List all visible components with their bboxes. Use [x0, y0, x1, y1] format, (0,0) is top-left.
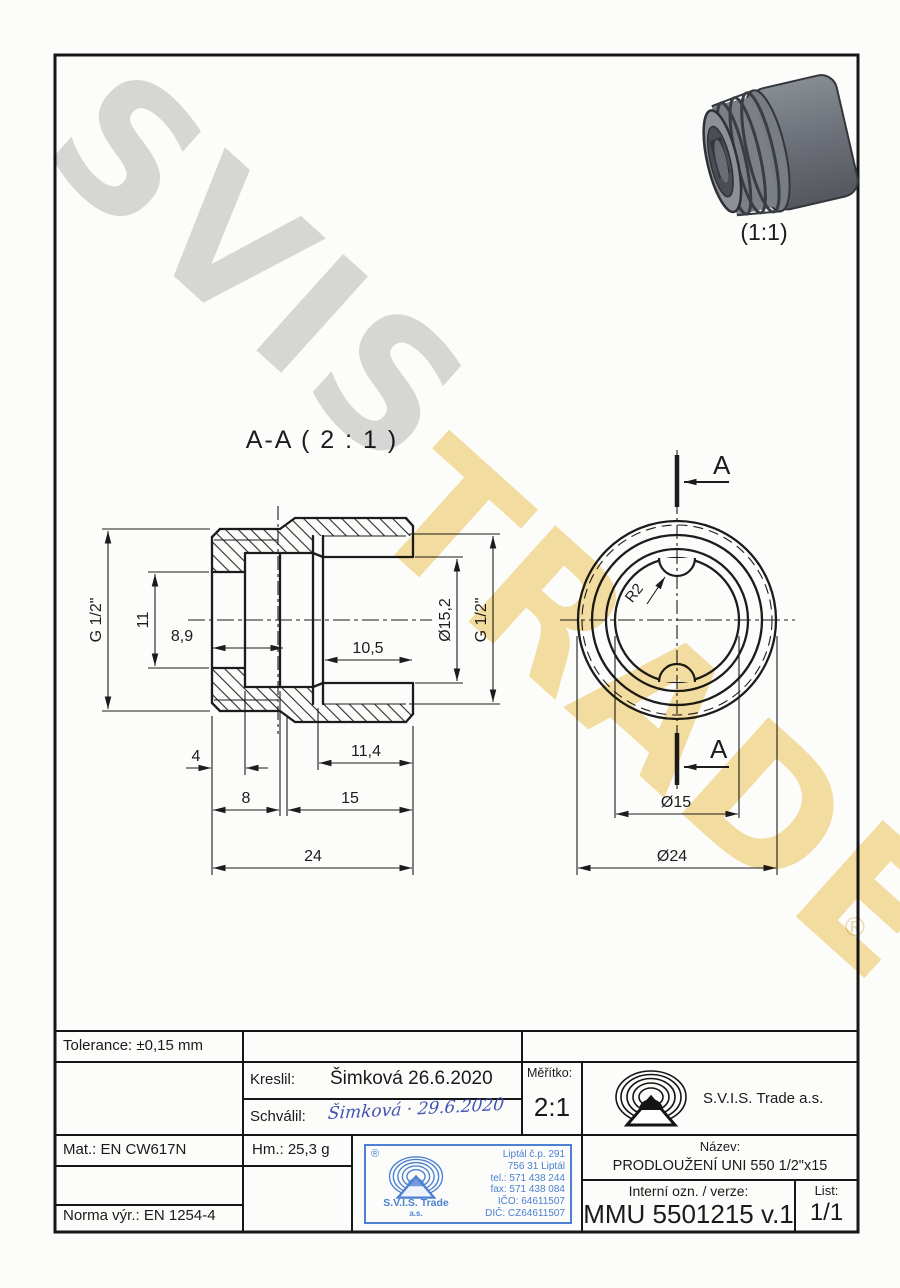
material-note: Mat.: EN CW617N	[63, 1141, 186, 1158]
dim-11: 11	[135, 612, 152, 629]
company-stamp: ® S.V.I.S. Trade a.s. Liptál č.p. 291 75…	[364, 1144, 572, 1224]
stamp-address-line: Liptál č.p. 291	[485, 1149, 565, 1161]
stamp-ico-line: IČO: 64611507	[485, 1196, 565, 1208]
schvalil-label: Schválil:	[250, 1108, 306, 1125]
stamp-address-line: 756 31 Liptál	[485, 1161, 565, 1173]
stamp-logo	[382, 1156, 450, 1200]
kreslil-value: Šimková 26.6.2020	[330, 1068, 493, 1090]
dim-4: 4	[192, 748, 201, 765]
front-view: A A R2 Ø15 Ø24	[560, 450, 795, 875]
stamp-company: S.V.I.S. Trade	[368, 1197, 464, 1209]
meritko-label: Měřítko:	[527, 1066, 572, 1080]
list-value: 1/1	[795, 1199, 858, 1227]
dim-8: 8	[242, 790, 251, 807]
kreslil-label: Kreslil:	[250, 1071, 295, 1088]
cut-label-top: A	[713, 450, 731, 480]
dim-g-right: G 1/2"	[473, 598, 490, 643]
dim-front-15: Ø15	[661, 794, 691, 811]
interni-value: MMU 5501215 v.1	[583, 1199, 794, 1230]
dim-front-24: Ø24	[657, 848, 687, 865]
dim-24: 24	[304, 848, 322, 865]
dim-15-2: Ø15,2	[437, 598, 454, 642]
tolerance-note: Tolerance: ±0,15 mm	[63, 1037, 203, 1054]
weight-note: Hm.: 25,3 g	[252, 1141, 330, 1158]
stamp-phone-line: tel.: 571 438 244	[485, 1173, 565, 1185]
stamp-company-suffix: a.s.	[368, 1209, 464, 1218]
cut-label-bottom: A	[710, 734, 728, 764]
cutting-plane-marks: A A	[677, 450, 731, 785]
nazev-label: Název:	[582, 1139, 858, 1154]
norm-note: Norma výr.: EN 1254-4	[63, 1207, 216, 1224]
dim-8-9: 8,9	[171, 628, 193, 645]
stamp-fax-line: fax: 571 438 084	[485, 1184, 565, 1196]
section-dimension-labels: G 1/2" 11 8,9 10,5 Ø15,2 G 1/2" 4 11,4 8…	[88, 598, 490, 865]
stamp-dic-line: DIČ: CZ64611507	[485, 1208, 565, 1220]
render-scale-label: (1:1)	[740, 219, 787, 245]
front-dimension-labels: Ø15 Ø24	[657, 794, 691, 865]
dim-15: 15	[341, 790, 359, 807]
drawing-sheet: A-A ( 2 : 1 )	[0, 0, 900, 1288]
section-title: A-A ( 2 : 1 )	[246, 426, 398, 454]
interni-label: Interní ozn. / verze:	[582, 1183, 795, 1199]
company-name: S.V.I.S. Trade a.s.	[703, 1090, 823, 1107]
part-3d-render	[694, 72, 861, 225]
list-label: List:	[795, 1183, 858, 1198]
company-logo	[606, 1070, 696, 1128]
stamp-address: Liptál č.p. 291 756 31 Liptál tel.: 571 …	[485, 1149, 565, 1220]
dim-g-left: G 1/2"	[88, 598, 105, 643]
dim-10-5: 10,5	[352, 640, 383, 657]
meritko-value: 2:1	[522, 1092, 582, 1123]
stamp-registered-mark: ®	[371, 1148, 379, 1160]
dim-11-4: 11,4	[351, 743, 381, 760]
section-view: A-A ( 2 : 1 )	[88, 426, 500, 875]
nazev-value: PRODLOUŽENÍ UNI 550 1/2"x15	[582, 1158, 858, 1174]
